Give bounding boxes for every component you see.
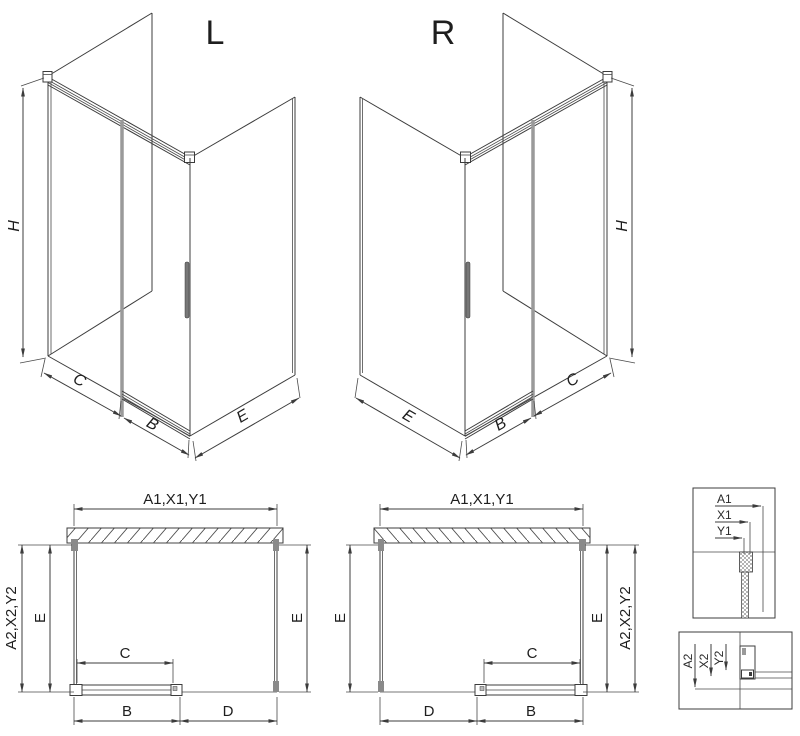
plan-r-dim-top-label: A1,X1,Y1 <box>450 491 513 508</box>
door-handle <box>185 262 189 318</box>
iso-r-dim-h-label: H <box>614 220 631 232</box>
iso-r-dim-c-label: C <box>564 370 583 391</box>
plan-r-dim-left-label: E <box>332 613 349 623</box>
plan-l-dim-d-label: D <box>223 703 234 720</box>
profile-details: A1 X1 Y1 A2 X2 Y2 <box>675 480 800 736</box>
iso-r-geometry <box>355 13 635 461</box>
plan-view-right: A1,X1,Y1 E E A2,X2,Y2 C B D <box>335 480 665 736</box>
plan-l-dim-top-label: A1,X1,Y1 <box>143 491 206 508</box>
wall-hatch <box>374 528 590 543</box>
iso-l-dim-h-label: H <box>6 220 23 232</box>
iso-l-title: L <box>206 14 225 52</box>
iso-r-title: R <box>431 14 456 52</box>
plan-l-dim-left-outer-label: A2,X2,Y2 <box>3 586 20 649</box>
iso-l-dimensions <box>20 78 300 461</box>
detail-x2-label: X2 <box>697 653 711 668</box>
plan-r-dim-right-outer-label: A2,X2,Y2 <box>617 586 634 649</box>
door-handle <box>466 262 470 318</box>
plan-r-dim-right-inner-label: E <box>589 613 606 623</box>
detail-a1-label: A1 <box>717 492 732 506</box>
detail-bottom-profile: A2 X2 Y2 <box>679 632 792 709</box>
detail-y2-label: Y2 <box>712 650 726 665</box>
iso-l-dim-e-label: E <box>234 406 252 426</box>
plan-r-dim-c-label: C <box>527 645 538 662</box>
detail-x1-label: X1 <box>717 508 732 522</box>
iso-view-right: R H C B E <box>330 0 655 475</box>
plan-l-dim-right-label: E <box>289 613 306 623</box>
iso-r-dim-e-label: E <box>399 407 417 427</box>
technical-drawing-sheet: L H C B E <box>0 0 800 736</box>
iso-l-dim-c-label: C <box>70 370 89 391</box>
iso-l-dim-b-label: B <box>143 415 161 435</box>
detail-y1-label: Y1 <box>717 524 732 538</box>
wall-hatch <box>67 528 283 543</box>
plan-view-left: A1,X1,Y1 A2,X2,Y2 E E C B D <box>0 480 335 736</box>
plan-l-dim-left-inner-label: E <box>32 613 49 623</box>
detail-top-profile: A1 X1 Y1 <box>693 488 775 618</box>
detail-a2-label: A2 <box>681 653 695 668</box>
plan-l-geometry <box>18 504 311 725</box>
plan-r-dim-d-label: D <box>424 703 435 720</box>
plan-l-dim-c-label: C <box>120 645 131 662</box>
plan-r-dim-b-label: B <box>526 703 536 720</box>
plan-l-dim-b-label: B <box>122 703 132 720</box>
iso-view-left: L H C B E <box>0 0 335 475</box>
